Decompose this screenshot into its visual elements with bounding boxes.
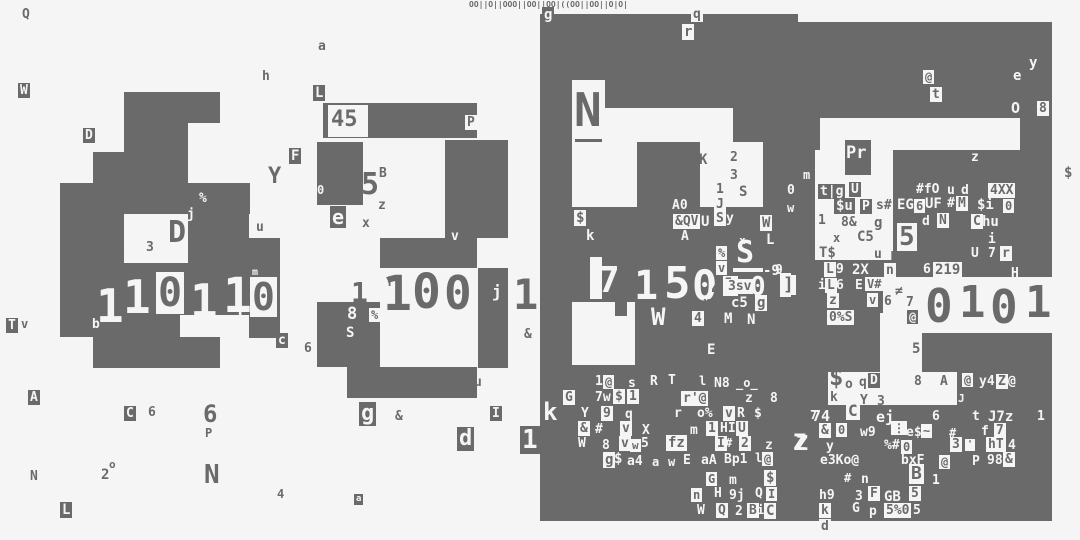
glyph: 0 xyxy=(901,440,912,454)
glyph: 6 xyxy=(923,263,931,276)
blob-rect xyxy=(124,92,220,123)
glyph: & xyxy=(524,328,532,341)
glyph: U xyxy=(736,421,748,436)
glyph: & xyxy=(1003,452,1015,467)
glyph: z xyxy=(765,439,773,452)
glyph: 3 xyxy=(730,169,738,182)
glyph: Bp1 xyxy=(724,453,747,466)
glyph: 2 xyxy=(730,151,738,164)
glyph: 6 xyxy=(932,410,940,423)
glyph: 2X xyxy=(852,263,869,277)
glyph: HI xyxy=(720,422,736,435)
glyph: 5 xyxy=(912,342,920,356)
glyph: Q xyxy=(22,8,30,21)
glyph: n xyxy=(691,488,702,502)
glyph: I xyxy=(490,406,502,421)
glyph: W xyxy=(697,504,705,517)
glyph: Z xyxy=(796,433,808,453)
glyph: # xyxy=(844,472,851,484)
glyph: z xyxy=(745,392,753,405)
glyph: N xyxy=(747,313,755,327)
glyph: $ xyxy=(614,452,622,466)
glyph: v xyxy=(620,421,632,436)
glyph: & xyxy=(395,410,403,423)
glyph: 2 xyxy=(735,505,743,518)
glyph: 1 xyxy=(1037,410,1045,423)
glyph: E xyxy=(707,343,715,357)
glyph: a xyxy=(652,456,659,468)
glyph: U xyxy=(971,247,979,260)
glyph: L xyxy=(60,502,72,518)
glyph: 9 xyxy=(601,406,613,421)
glyph: 6 xyxy=(836,279,844,292)
glyph: W xyxy=(578,437,586,450)
glyph: & xyxy=(114,243,122,256)
glyph: 8 xyxy=(602,439,610,452)
glyph: $ xyxy=(613,389,625,404)
blob-rect xyxy=(60,183,250,214)
glyph: aA xyxy=(701,454,717,467)
glyph: @ xyxy=(962,373,973,387)
glyph: 1 xyxy=(351,279,368,307)
glyph: l xyxy=(699,375,706,387)
glyph: S xyxy=(714,211,726,226)
glyph: V# xyxy=(865,277,883,291)
glyph: w xyxy=(668,456,675,468)
glyph: 5 xyxy=(664,262,691,306)
glyph: 5 xyxy=(909,486,921,501)
glyph: % xyxy=(716,246,727,260)
glyph: @ xyxy=(939,455,950,469)
glyph: P xyxy=(860,199,872,214)
glyph: 1 xyxy=(932,474,940,487)
glyph: % xyxy=(369,308,380,322)
glyph: $ xyxy=(764,470,776,486)
glyph: v xyxy=(867,293,878,307)
glyph: r xyxy=(1000,246,1012,261)
glyph: w xyxy=(787,202,794,214)
glyph: m xyxy=(729,474,737,487)
glyph: Y xyxy=(268,166,281,188)
glyph: $ xyxy=(574,210,586,226)
glyph: 4 xyxy=(277,488,284,500)
glyph: J xyxy=(714,197,726,212)
glyph: & xyxy=(819,423,831,438)
glyph: hu xyxy=(982,215,999,229)
glyph: z xyxy=(378,199,386,212)
glyph: u xyxy=(874,248,882,261)
glyph: A xyxy=(28,390,40,405)
glyph: fz xyxy=(666,435,687,451)
glyph: w9 xyxy=(860,426,876,439)
glyph: j xyxy=(234,305,245,323)
glyph: @ xyxy=(907,310,918,324)
glyph: Q xyxy=(716,503,728,518)
glyph: 2 xyxy=(739,436,751,451)
glyph: 1 xyxy=(96,283,124,329)
glyph: 8 xyxy=(914,375,922,388)
glyph: v xyxy=(21,318,28,330)
glyph: H xyxy=(1011,267,1019,280)
glyph: R xyxy=(737,407,745,420)
glyph: D xyxy=(83,128,95,143)
glyph: I xyxy=(766,487,777,501)
glyph: 7 xyxy=(598,263,620,299)
glyph: 98 xyxy=(987,454,1003,467)
glyph: 0 xyxy=(1003,199,1014,213)
glyph: E xyxy=(683,454,691,467)
glyph: L xyxy=(313,85,325,101)
glyph: u xyxy=(474,376,482,389)
glyph: t xyxy=(972,410,980,423)
glyph: m xyxy=(803,169,810,181)
glyph: 1 xyxy=(190,278,218,324)
glyph: 5 xyxy=(913,504,921,517)
glyph: u xyxy=(256,221,264,234)
glyph: M xyxy=(956,196,968,211)
glyph: B xyxy=(909,464,924,484)
glyph: d xyxy=(457,427,474,451)
glyph: 4 xyxy=(692,311,704,326)
glyph: Pr xyxy=(846,145,866,162)
glyph: R xyxy=(650,375,658,388)
glyph: @ xyxy=(923,70,934,84)
glyph: ⋮ xyxy=(891,421,907,435)
glyph: U xyxy=(701,215,709,229)
glyph: B xyxy=(379,167,387,180)
glyph: S xyxy=(739,185,747,199)
glyph: e$ xyxy=(906,426,922,439)
glyph: e3Ko@ xyxy=(820,454,859,467)
glyph: 6 xyxy=(914,199,925,213)
glyph: d xyxy=(819,519,831,534)
glyph: G xyxy=(852,502,860,515)
glyph: z xyxy=(971,151,979,164)
glyph: q xyxy=(691,7,703,22)
glyph: S xyxy=(346,326,354,340)
glyph: 6 xyxy=(148,406,156,419)
glyph: t xyxy=(930,87,942,102)
glyph: c5 xyxy=(731,296,748,310)
glyph: T$ xyxy=(819,246,836,260)
glyph: 7 xyxy=(988,247,996,260)
glyph: c xyxy=(276,333,288,348)
glyph: 8 xyxy=(1037,101,1049,116)
glyph: & xyxy=(578,421,590,436)
blob-rect xyxy=(93,152,188,183)
glyph: C xyxy=(764,503,776,519)
glyph: # xyxy=(725,437,732,449)
glyph: A xyxy=(681,230,689,243)
glyph: O xyxy=(1011,101,1020,116)
glyph: 8 xyxy=(347,306,357,323)
glyph: H xyxy=(714,487,722,500)
glyph: g xyxy=(755,295,767,311)
glyph: v xyxy=(451,230,459,243)
glyph: G xyxy=(706,472,717,486)
glyph: Y xyxy=(860,394,868,407)
glyph: N xyxy=(30,470,38,483)
glyph: y xyxy=(826,440,834,453)
glyph: 9 xyxy=(836,263,844,276)
glyph: 1 xyxy=(959,281,986,325)
glyph: 0 xyxy=(925,283,953,329)
glyph: 1 xyxy=(383,270,412,318)
glyph: a4 xyxy=(627,455,643,468)
glyph: $ xyxy=(1064,166,1072,180)
glyph: U xyxy=(849,182,861,197)
glyph: m xyxy=(690,424,698,437)
glyph: EG xyxy=(897,198,914,212)
glyph: W xyxy=(760,215,772,231)
glyph: 0 xyxy=(412,268,441,316)
glyph: @ xyxy=(762,452,773,466)
glyph: S xyxy=(736,238,754,268)
glyph: p xyxy=(869,505,877,518)
glyph: q xyxy=(625,408,633,421)
glyph: #fO xyxy=(916,183,939,196)
glyph: w xyxy=(630,439,641,452)
glyph: M xyxy=(724,312,732,326)
glyph: GB xyxy=(884,490,901,504)
glyph: n xyxy=(884,263,896,278)
glyph: _o_ xyxy=(736,377,758,389)
glyph: 1 xyxy=(595,375,603,388)
glyph: A0 xyxy=(672,199,688,212)
glyph: 0 xyxy=(787,184,795,197)
glyph: 3 xyxy=(877,395,885,408)
glyph: 8 xyxy=(770,392,778,405)
glyph: @ xyxy=(1008,375,1016,388)
glyph: v xyxy=(716,261,727,275)
glyph: L xyxy=(824,262,836,277)
glyph: Y xyxy=(581,407,589,420)
glyph: d xyxy=(922,215,930,228)
glyph: k xyxy=(586,229,594,243)
blob-rect xyxy=(124,123,188,153)
glyph: F xyxy=(868,486,880,501)
glyph: 1 xyxy=(634,266,658,306)
glyph: 0%S xyxy=(827,310,854,325)
glyph: 74 xyxy=(812,409,830,424)
glyph: 5 xyxy=(361,170,379,200)
glyph: 4XX xyxy=(988,183,1015,198)
glyph: ' xyxy=(965,439,975,451)
blob-rect xyxy=(572,142,637,207)
glyph: $u xyxy=(834,198,855,214)
glyph: E xyxy=(855,279,863,292)
glyph: L xyxy=(766,233,774,247)
glyph: 6 xyxy=(304,342,312,355)
glyph: &QV xyxy=(673,214,700,229)
glyph: C xyxy=(124,406,136,421)
glyph: hT xyxy=(986,437,1006,452)
glyph: 1 xyxy=(706,421,718,436)
glyph: 8& xyxy=(841,216,857,229)
glyph: 5 xyxy=(641,437,649,450)
glyph: F xyxy=(289,148,301,164)
glyph: 6 xyxy=(884,295,892,308)
glyph: g xyxy=(874,216,882,230)
glyph: k xyxy=(819,503,831,518)
glyph: 45 xyxy=(331,109,358,131)
glyph: 5 xyxy=(897,223,917,251)
glyph: A xyxy=(940,375,948,388)
glyph: a xyxy=(354,494,363,505)
glyph: 0 xyxy=(317,184,324,196)
glyph: P xyxy=(205,427,212,439)
glyph: ~ xyxy=(921,424,932,438)
glyph: N xyxy=(937,213,949,228)
glyph: 0 xyxy=(990,284,1018,330)
glyph: r xyxy=(682,24,694,40)
glyph: 7 xyxy=(906,296,914,309)
glyph: %# xyxy=(884,439,900,452)
glyph: x,+ xyxy=(703,296,725,308)
glyph: a xyxy=(318,40,326,53)
glyph: Z xyxy=(996,374,1008,389)
glyph: k xyxy=(830,391,838,404)
glyph: N8 xyxy=(714,377,730,390)
blob-rect xyxy=(188,214,249,263)
glyph: 2 xyxy=(101,468,109,482)
glyph: 1 xyxy=(520,426,540,454)
glyph: 1 xyxy=(123,274,151,320)
glyph: y4 xyxy=(979,375,995,388)
glyph: 3 xyxy=(146,241,154,254)
glyph: o xyxy=(845,378,853,391)
glyph: x xyxy=(833,232,840,244)
glyph: W xyxy=(18,83,30,98)
glyph: ≠ xyxy=(895,285,903,298)
glyph: 1 xyxy=(818,214,826,227)
glyph: 4 xyxy=(1008,439,1016,452)
glyph: ] xyxy=(781,275,796,295)
glyph: 1 xyxy=(1025,281,1052,325)
glyph: $ xyxy=(829,365,843,389)
glyph: q xyxy=(859,376,867,389)
glyph: N xyxy=(574,87,602,133)
glyph: i xyxy=(988,233,996,246)
glyph: r'@ xyxy=(681,391,708,406)
glyph: 219 xyxy=(933,262,962,278)
blob-rect xyxy=(575,139,602,142)
glyph: e xyxy=(330,206,346,228)
glyph: e xyxy=(1013,69,1021,83)
glyph: s# xyxy=(876,199,892,212)
blob-rect xyxy=(347,367,477,398)
glyph: j xyxy=(187,208,195,221)
glyph: UF xyxy=(925,197,942,211)
glyph: y xyxy=(1029,56,1037,70)
glyph: $i xyxy=(977,198,994,212)
glyph: $ xyxy=(754,407,762,420)
glyph: k xyxy=(543,400,557,424)
glyph: 0 xyxy=(156,272,184,314)
glyph: 7w xyxy=(595,391,611,404)
glyph: P xyxy=(465,115,477,130)
glyph: r xyxy=(674,407,682,420)
glyph: 0 xyxy=(836,423,847,437)
glyph: # xyxy=(595,423,603,436)
glyph: D xyxy=(868,373,880,388)
glyph: 1 xyxy=(627,389,639,404)
glyph: 0 xyxy=(444,270,472,316)
glyph: W xyxy=(651,305,665,329)
blob-rect xyxy=(445,140,508,238)
glyph: t|g xyxy=(818,184,845,199)
glyph: g xyxy=(542,7,554,23)
glyph: G xyxy=(563,390,575,405)
glyph: P xyxy=(972,455,980,468)
glyph: v xyxy=(723,406,735,421)
glyph: J xyxy=(958,393,965,404)
blob-rect xyxy=(615,300,627,316)
glitch-art-canvas: OO||O||OOO||OO||OO|((OO||OO||O|O| QWhDY%… xyxy=(0,0,1080,540)
glyph: T xyxy=(668,374,676,387)
glyph: 3 xyxy=(950,437,962,452)
glyph: 9 xyxy=(775,264,783,277)
glyph: D xyxy=(168,218,186,248)
glyph: b xyxy=(92,318,100,331)
glyph: o xyxy=(109,459,116,470)
glyph: o% xyxy=(697,407,713,420)
glyph: h9 xyxy=(819,489,835,502)
glyph: g xyxy=(359,402,376,426)
glyph: 1 xyxy=(513,274,538,316)
blob-rect xyxy=(93,337,220,368)
glyph: h xyxy=(262,70,270,83)
glyph: 9j xyxy=(729,489,745,502)
glyph: C5 xyxy=(857,230,874,244)
glyph: 5%0 xyxy=(884,503,911,518)
glyph: C xyxy=(846,402,860,420)
glyph: 0 xyxy=(250,277,277,317)
glyph: n xyxy=(861,473,869,486)
glyph: 1 xyxy=(714,182,726,197)
blob-rect xyxy=(798,14,1052,22)
glyph: 7 xyxy=(994,423,1006,438)
glyph: K xyxy=(699,153,707,167)
glyph: 6 xyxy=(203,402,217,426)
glyph: z xyxy=(827,293,839,308)
glyph: j xyxy=(492,284,502,300)
glyph: x xyxy=(362,217,370,230)
glyph: N xyxy=(204,462,220,488)
glyph: Q xyxy=(755,487,763,500)
glyph: # xyxy=(947,197,955,210)
glyph: T xyxy=(6,318,18,333)
glyph: y xyxy=(726,212,734,225)
glyph: @ xyxy=(603,375,614,389)
glyph: J7z xyxy=(988,410,1013,424)
glyph: % xyxy=(199,192,207,205)
